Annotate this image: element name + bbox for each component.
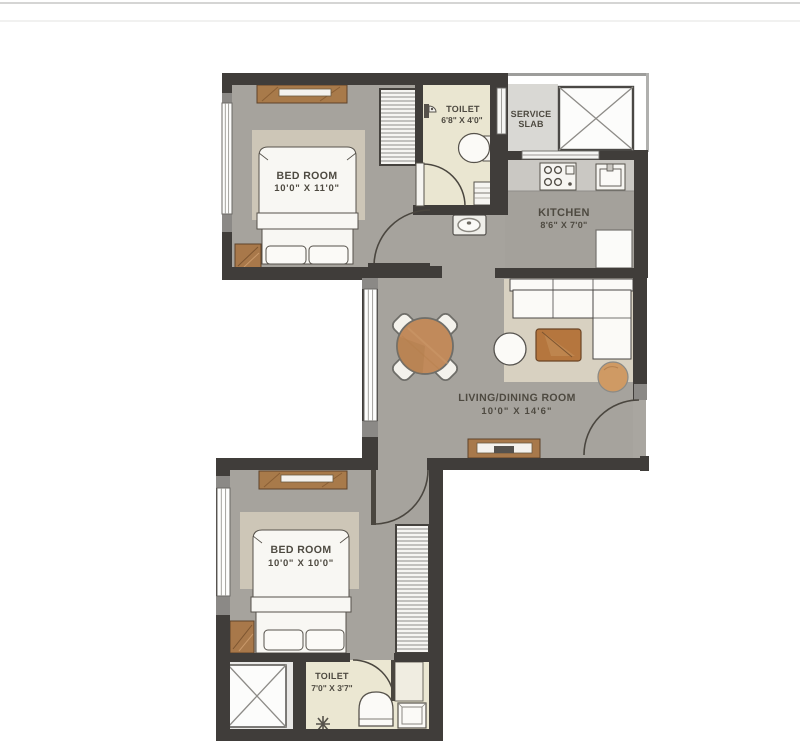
svg-text:SLAB: SLAB (518, 119, 544, 129)
svg-text:SERVICE: SERVICE (511, 109, 552, 119)
svg-text:BED ROOM: BED ROOM (271, 544, 332, 556)
svg-text:LIVING/DINING ROOM: LIVING/DINING ROOM (458, 392, 575, 404)
svg-text:6'8" X 4'0": 6'8" X 4'0" (441, 115, 482, 125)
svg-text:10'0" X 11'0": 10'0" X 11'0" (274, 183, 339, 194)
svg-text:7'0" X 3'7": 7'0" X 3'7" (311, 683, 352, 693)
svg-text:KITCHEN: KITCHEN (538, 207, 590, 219)
svg-text:TOILET: TOILET (315, 671, 349, 681)
svg-text:TOILET: TOILET (446, 104, 480, 114)
svg-text:10'0" X 14'6": 10'0" X 14'6" (481, 406, 552, 417)
svg-text:10'0" X 10'0": 10'0" X 10'0" (268, 558, 334, 569)
svg-text:BED ROOM: BED ROOM (277, 170, 338, 182)
svg-text:8'6" X 7'0": 8'6" X 7'0" (540, 220, 587, 230)
